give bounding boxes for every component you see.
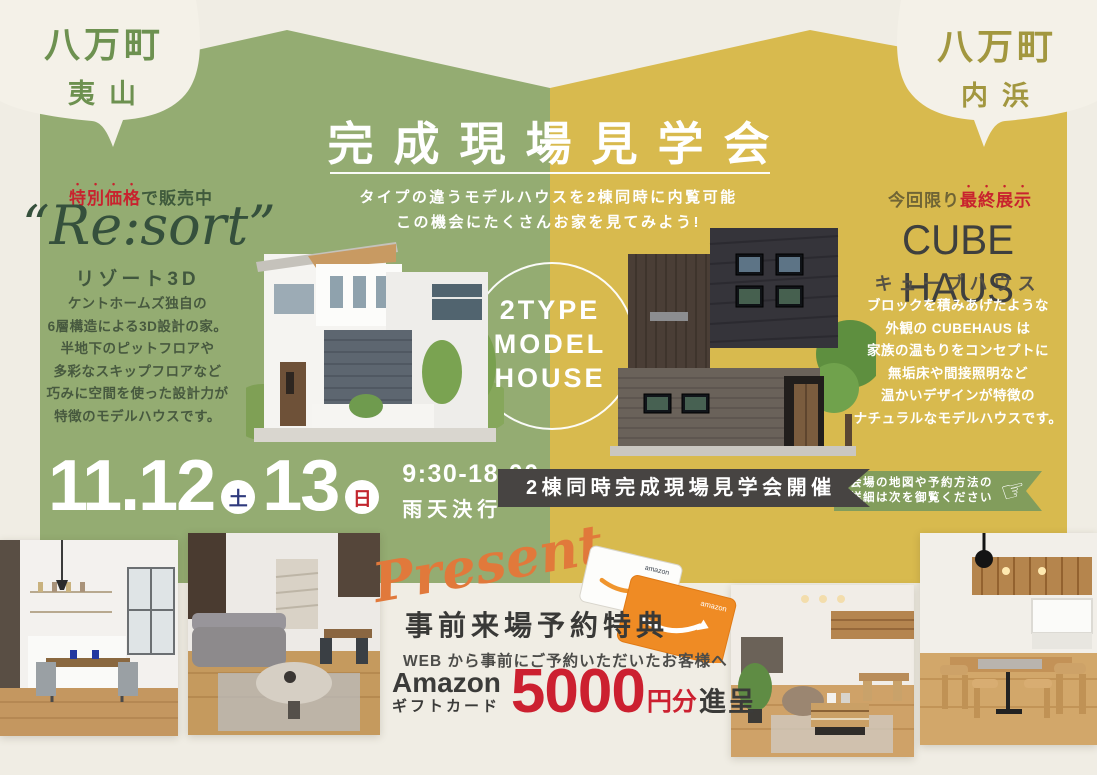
interior-photo-dining-wood	[920, 533, 1097, 745]
resort-house-photo	[246, 220, 504, 444]
resort-description-line: 半地下のピットフロアや	[25, 338, 250, 361]
gift-amount-unit: 円分	[647, 682, 697, 718]
circle-line: MODEL	[494, 327, 607, 361]
cube-description-line: ブロックを積みあげたような	[845, 295, 1071, 318]
resort-logo: “Re:sort”	[22, 194, 248, 257]
gift-brand-block: Amazon ギフトカード	[392, 668, 501, 716]
two-type-circle-label: 2TYPE MODEL HOUSE	[468, 262, 632, 426]
town-name: 八万町	[897, 18, 1093, 70]
resort-description-line: 多彩なスキップフロアなど	[25, 361, 250, 384]
ribbon-line: 詳細は次を御覧ください	[850, 491, 993, 506]
final-exhibit-emphasis: 最終展示	[960, 191, 1032, 210]
cube-description-line: 外観の CUBEHAUS は	[845, 318, 1071, 341]
location-bubble-right-text: 八万町 内浜	[897, 18, 1093, 113]
map-info-text: 会場の地図や予約方法の 詳細は次を御覧ください	[850, 476, 993, 506]
ribbon-line: 会場の地図や予約方法の	[850, 476, 993, 491]
gift-amount-row: Amazon ギフトカード 5000 円分 進呈	[392, 664, 757, 720]
interior-photo-living-warm	[731, 585, 914, 757]
cube-description: ブロックを積みあげたような 外観の CUBEHAUS は 家族の温もりをコンセプ…	[845, 295, 1071, 430]
cube-house-photo	[598, 216, 876, 458]
gift-brand: Amazon	[392, 668, 501, 698]
flyer-canvas: 八万町 夷山 八万町 内浜 完成現場見学会 タイプの違うモデルハウスを2棟同時に…	[0, 0, 1097, 775]
event-banner: 2棟同時完成現場見学会開催	[498, 469, 870, 507]
resort-description-line: 6層構造による3D設計の家。	[25, 316, 250, 339]
cube-description-line: 温かいデザインが特徴の	[845, 385, 1071, 408]
page-title: 完成現場見学会	[0, 108, 1097, 174]
cube-final-badge: 今回限り最終展示	[855, 181, 1065, 211]
resort-description-line: 巧みに空間を使った設計力が	[25, 383, 250, 406]
interior-photo-living-gray	[188, 533, 380, 735]
event-date-second: 13	[262, 446, 338, 526]
sunday-badge: 日	[345, 480, 379, 514]
resort-description-line: ケントホームズ独自の	[25, 293, 250, 316]
cube-description-line: 家族の温もりをコンセプトに	[845, 340, 1071, 363]
circle-line: HOUSE	[494, 361, 605, 395]
pointing-hand-icon: ☞	[998, 474, 1029, 507]
cube-haus-kana: キューブハウス	[850, 270, 1066, 296]
gift-suffix: 進呈	[699, 680, 757, 719]
resort-description: ケントホームズ独自の 6層構造による3D設計の家。 半地下のピットフロアや 多彩…	[25, 293, 250, 428]
circle-line: 2TYPE	[500, 293, 601, 327]
last-time-prefix: 今回限り	[888, 191, 960, 210]
cube-description-line: 無垢床や間接照明など	[845, 363, 1071, 386]
location-bubble-left-text: 八万町 夷山	[4, 16, 200, 111]
town-name: 八万町	[4, 16, 200, 68]
gift-brand-sub: ギフトカード	[392, 698, 501, 716]
interior-photo-dining	[0, 540, 178, 736]
resort-description-line: 特徴のモデルハウスです。	[25, 406, 250, 429]
gift-amount: 5000	[511, 664, 645, 720]
resort-kana: リゾート3D	[30, 264, 245, 291]
cube-description-line: ナチュラルなモデルハウスです。	[845, 408, 1071, 431]
event-date-row: 11.12 土 13 日 9:30-18:00 雨天決行	[48, 446, 540, 526]
district-name: 夷山	[4, 72, 200, 111]
reservation-benefit-title: 事前来場予約特典	[405, 604, 669, 644]
title-underline	[330, 172, 770, 174]
saturday-badge: 土	[221, 480, 255, 514]
event-date-first: 11.12	[48, 446, 214, 526]
